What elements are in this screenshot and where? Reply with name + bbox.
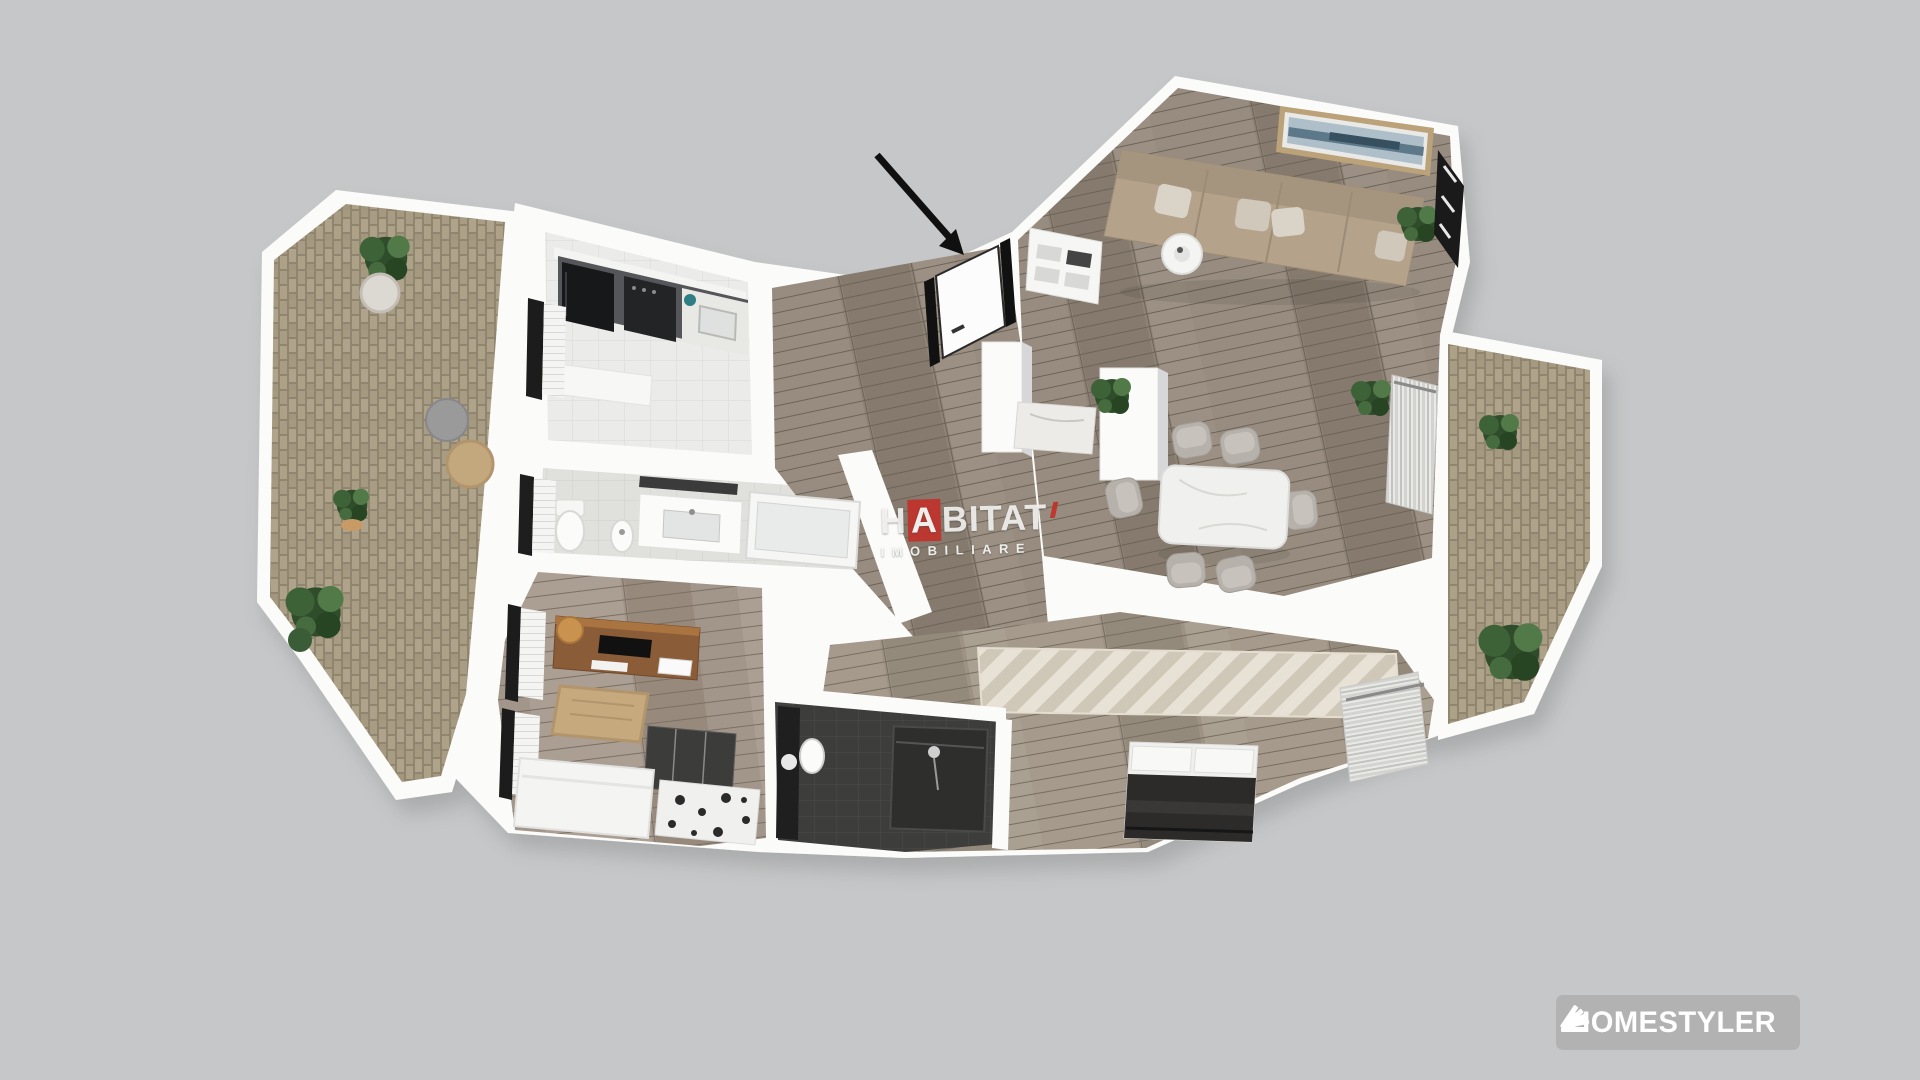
bathroom-window [518, 474, 534, 556]
shower [890, 726, 988, 831]
bathroom-ensuite [768, 686, 1012, 852]
jute-rug-round [447, 441, 493, 487]
balcony-table [426, 399, 468, 441]
dining-chair [1166, 551, 1207, 588]
office-curtain [518, 608, 546, 700]
floral-bed [655, 780, 760, 845]
wardrobe-lower [1340, 672, 1428, 782]
wardrobe-upper [1386, 375, 1438, 514]
toilet [556, 511, 584, 551]
brand-badge-label: HOMESTYLER [1569, 1006, 1776, 1040]
dining-chair [1170, 420, 1213, 460]
sofa-pillow [1271, 206, 1306, 237]
double-bed [1124, 742, 1258, 842]
dark-vanity [776, 706, 800, 840]
sofa-pillow [1234, 198, 1272, 232]
stage: H A BITAT IMOBILIARE HOMESTYLER [0, 0, 1920, 1080]
oven-knob [652, 290, 656, 294]
oven-knob [642, 288, 646, 292]
right-balcony [1448, 344, 1590, 724]
shoe-cabinet [1026, 228, 1102, 304]
round-chair [361, 274, 399, 312]
dining-chair [1218, 426, 1261, 466]
dining-table [1158, 465, 1290, 550]
pillow [1194, 748, 1254, 774]
shower-head [928, 746, 940, 758]
sofa-pillow [1374, 230, 1408, 263]
bidet-faucet [619, 529, 625, 535]
refrigerator [562, 262, 614, 332]
striped-runner-rug [978, 648, 1400, 718]
bidet [611, 520, 633, 552]
pillow [1131, 746, 1192, 772]
side-table-round [1162, 234, 1202, 274]
brand-badge: HOMESTYLER [1556, 995, 1800, 1050]
kitchen-window [526, 298, 544, 400]
teal-vase [684, 294, 696, 306]
stool [557, 617, 583, 643]
toilet [800, 739, 824, 773]
bathroom-curtain [532, 478, 556, 554]
daybed-white [514, 758, 654, 838]
floor-plan-render [0, 0, 1920, 1080]
sofa-shadow [1120, 279, 1420, 305]
jute-rug [552, 686, 648, 742]
vase [1177, 247, 1183, 253]
oven-knob [632, 286, 636, 290]
entrance-arrow [877, 155, 964, 255]
marble-bench [1014, 402, 1096, 454]
plant-pot [341, 519, 363, 531]
notebook [658, 658, 692, 676]
sink-faucet [689, 509, 695, 515]
kitchen-curtain [542, 303, 566, 398]
bathtub-basin [755, 502, 850, 558]
washbasin [781, 754, 797, 770]
